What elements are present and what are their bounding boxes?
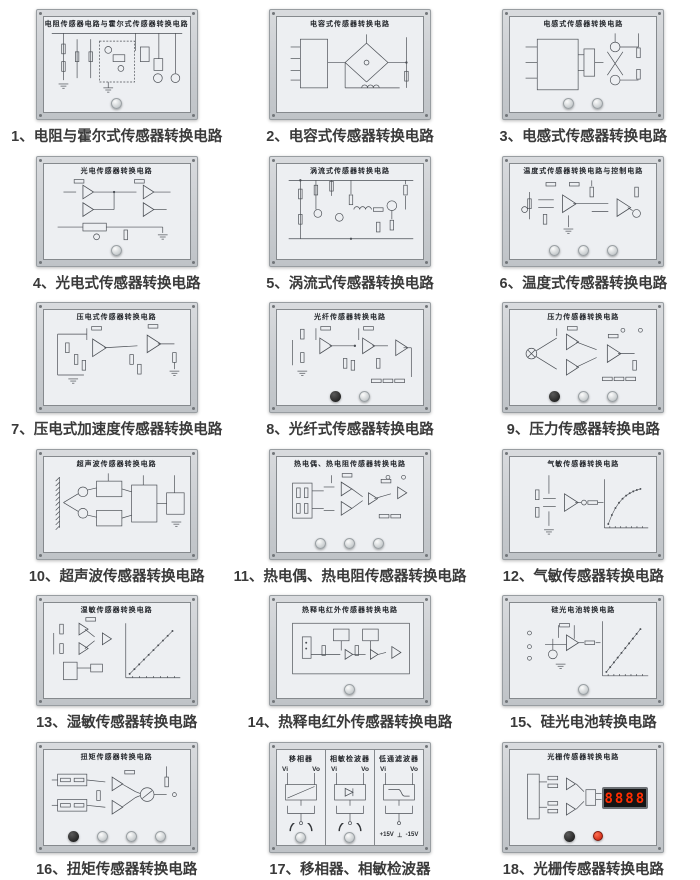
panel-caption: 13、湿敏传感器转换电路: [36, 711, 197, 732]
panel-caption: 10、超声波传感器转换电路: [29, 565, 205, 586]
light-rotary-knob: [578, 245, 589, 256]
light-rotary-knob: [373, 538, 384, 549]
screw-icon: [39, 12, 42, 15]
knob-row: [510, 684, 656, 695]
screw-icon: [272, 700, 275, 703]
panel-cell: 温度式传感器转换电路与控制电路 6、温度式传感器转换电路: [467, 147, 700, 294]
light-rotary-knob: [578, 684, 589, 695]
digital-display: 8888: [602, 787, 648, 809]
knob-row: [44, 245, 190, 256]
panel-grid: 电阻传感器电路与霍尔式传感器转换电路 1、电阻与霍尔式传感器转换电路 电容式传感…: [0, 0, 700, 880]
screw-icon: [272, 159, 275, 162]
panel-cell: 光纤传感器转换电路 8、光纤式传感器转换电路: [233, 293, 466, 440]
circuit-panel-13: 湿敏传感器转换电路: [36, 595, 198, 706]
panel-section-1: 移相器ViVo: [277, 750, 325, 845]
panel-caption: 7、压电式加速度传感器转换电路: [11, 418, 222, 439]
screw-icon: [425, 554, 428, 557]
screw-icon: [658, 700, 661, 703]
screw-icon: [39, 159, 42, 162]
rotary-knob: [295, 832, 306, 843]
panel-plate: 电容式传感器转换电路: [276, 16, 424, 113]
panel-plate: 硅光电池转换电路: [509, 602, 657, 699]
panel-cell: 电容式传感器转换电路 2、电容式传感器转换电路: [233, 0, 466, 147]
panel-cell: 扭矩传感器转换电路 16、扭矩传感器转换电路: [0, 733, 233, 880]
vo-terminal-label: Vo: [410, 766, 418, 773]
knob-row: [510, 98, 656, 109]
screw-icon: [272, 554, 275, 557]
dial-arc-icon: [286, 823, 316, 832]
schematic-drawing: [277, 17, 423, 112]
panel-cell: 热释电红外传感器转换电路 14、热释电红外传感器转换电路: [233, 586, 466, 733]
circuit-panel-10: 超声波传感器转换电路: [36, 449, 198, 560]
panel-cell: 涡流式传感器转换电路 5、涡流式传感器转换电路: [233, 147, 466, 294]
screw-icon: [425, 159, 428, 162]
schematic-drawing: [44, 457, 190, 552]
screw-icon: [192, 745, 195, 748]
screw-icon: [39, 745, 42, 748]
circuit-panel-3: 电感式传感器转换电路: [502, 9, 664, 120]
panel-plate: 气敏传感器转换电路: [509, 456, 657, 553]
light-rotary-knob: [549, 245, 560, 256]
panel-plate: 扭矩传感器转换电路: [43, 749, 191, 846]
screw-icon: [39, 407, 42, 410]
circuit-panel-16: 扭矩传感器转换电路: [36, 742, 198, 853]
circuit-panel-11: 热电偶、热电阻传感器转换电路: [269, 449, 431, 560]
screw-icon: [425, 700, 428, 703]
knob-row: [277, 684, 423, 695]
screw-icon: [39, 261, 42, 264]
circuit-panel-14: 热释电红外传感器转换电路: [269, 595, 431, 706]
panel-caption: 3、电感式传感器转换电路: [500, 125, 668, 146]
knob-row: [510, 391, 656, 402]
screw-icon: [192, 598, 195, 601]
screw-icon: [272, 12, 275, 15]
circuit-panel-18: 光栅传感器转换电路 8888: [502, 742, 664, 853]
section-terminals: ViVo: [277, 766, 325, 773]
knob-row: [44, 831, 190, 842]
screw-icon: [272, 305, 275, 308]
knob-row: [277, 538, 423, 549]
panel-plate: 光栅传感器转换电路 8888: [509, 749, 657, 846]
screw-icon: [658, 261, 661, 264]
screw-icon: [505, 700, 508, 703]
panel-caption: 12、气敏传感器转换电路: [503, 565, 664, 586]
circuit-panel-4: 光电传感器转换电路: [36, 156, 198, 267]
screw-icon: [425, 12, 428, 15]
panel-caption: 1、电阻与霍尔式传感器转换电路: [11, 125, 222, 146]
vo-terminal-label: Vo: [312, 766, 320, 773]
circuit-panel-7: 压电式传感器转换电路: [36, 302, 198, 413]
light-rotary-knob: [607, 245, 618, 256]
section-title: 移相器: [289, 754, 313, 764]
circuit-panel-2: 电容式传感器转换电路: [269, 9, 431, 120]
panel-plate: 涡流式传感器转换电路: [276, 163, 424, 260]
section-title: 低通滤波器: [379, 754, 419, 764]
screw-icon: [192, 261, 195, 264]
screw-icon: [39, 847, 42, 850]
schematic-drawing: [44, 603, 190, 698]
knob-row: [277, 391, 423, 402]
screw-icon: [425, 305, 428, 308]
panel-plate: 电感式传感器转换电路: [509, 16, 657, 113]
panel-cell: 压电式传感器转换电路 7、压电式加速度传感器转换电路: [0, 293, 233, 440]
light-rotary-knob: [592, 98, 603, 109]
power-label: -15V: [406, 832, 419, 839]
dark-rotary-knob: [68, 831, 79, 842]
power-terminal-labels: +15V⊥-15V: [375, 832, 423, 839]
circuit-panel-17: 移相器ViVo相敏检波器ViVo低通滤波器ViVo+15V⊥-15V: [269, 742, 431, 853]
screw-icon: [192, 114, 195, 117]
light-rotary-knob: [563, 98, 574, 109]
knob-row: [510, 831, 656, 842]
panel-caption: 18、光栅传感器转换电路: [503, 858, 664, 879]
screw-icon: [658, 114, 661, 117]
panel-plate: 压电式传感器转换电路: [43, 309, 191, 406]
screw-icon: [505, 305, 508, 308]
screw-icon: [192, 12, 195, 15]
panel-cell: 湿敏传感器转换电路 13、湿敏传感器转换电路: [0, 586, 233, 733]
panel-caption: 14、热释电红外传感器转换电路: [248, 711, 453, 732]
screw-icon: [272, 407, 275, 410]
panel-caption: 2、电容式传感器转换电路: [266, 125, 434, 146]
panel-plate: 移相器ViVo相敏检波器ViVo低通滤波器ViVo+15V⊥-15V: [276, 749, 424, 846]
light-rotary-knob: [344, 684, 355, 695]
screw-icon: [192, 452, 195, 455]
light-rotary-knob: [315, 538, 326, 549]
screw-icon: [272, 452, 275, 455]
screw-icon: [425, 745, 428, 748]
panel-section-3: 低通滤波器ViVo+15V⊥-15V: [374, 750, 423, 845]
dark-rotary-knob: [549, 391, 560, 402]
screw-icon: [658, 598, 661, 601]
screw-icon: [272, 114, 275, 117]
panel-caption: 4、光电式传感器转换电路: [33, 272, 201, 293]
screw-icon: [505, 745, 508, 748]
panel-plate: 湿敏传感器转换电路: [43, 602, 191, 699]
circuit-panel-12: 气敏传感器转换电路: [502, 449, 664, 560]
panel-plate: 压力传感器转换电路: [509, 309, 657, 406]
screw-icon: [192, 305, 195, 308]
panel-cell: 移相器ViVo相敏检波器ViVo低通滤波器ViVo+15V⊥-15V 17、移相…: [233, 733, 466, 880]
schematic-drawing: [44, 310, 190, 405]
circuit-panel-1: 电阻传感器电路与霍尔式传感器转换电路: [36, 9, 198, 120]
vo-terminal-label: Vo: [361, 766, 369, 773]
panel-plate: 热释电红外传感器转换电路: [276, 602, 424, 699]
dark-rotary-knob: [330, 391, 341, 402]
panel-plate: 电阻传感器电路与霍尔式传感器转换电路: [43, 16, 191, 113]
section-knob-area: [277, 823, 325, 843]
light-rotary-knob: [607, 391, 618, 402]
screw-icon: [192, 407, 195, 410]
screw-icon: [425, 114, 428, 117]
panel-cell: 超声波传感器转换电路 10、超声波传感器转换电路: [0, 440, 233, 587]
circuit-panel-5: 涡流式传感器转换电路: [269, 156, 431, 267]
screw-icon: [39, 305, 42, 308]
panel-plate: 热电偶、热电阻传感器转换电路: [276, 456, 424, 553]
screw-icon: [272, 598, 275, 601]
panel-caption: 6、温度式传感器转换电路: [500, 272, 668, 293]
vi-terminal-label: Vi: [380, 766, 386, 773]
section-terminals: ViVo: [375, 766, 423, 773]
dial-arc-icon: [335, 823, 365, 832]
panel-caption: 5、涡流式传感器转换电路: [266, 272, 434, 293]
screw-icon: [505, 114, 508, 117]
vi-terminal-label: Vi: [282, 766, 288, 773]
screw-icon: [192, 554, 195, 557]
panel-plate: 超声波传感器转换电路: [43, 456, 191, 553]
panel-cell: 热电偶、热电阻传感器转换电路 11、热电偶、热电阻传感器转换电路: [233, 440, 466, 587]
light-rotary-knob: [126, 831, 137, 842]
circuit-panel-8: 光纤传感器转换电路: [269, 302, 431, 413]
screw-icon: [425, 847, 428, 850]
screw-icon: [658, 554, 661, 557]
screw-icon: [505, 407, 508, 410]
red-push-button: [593, 831, 603, 841]
vi-terminal-label: Vi: [331, 766, 337, 773]
panel-cell: 电感式传感器转换电路 3、电感式传感器转换电路: [467, 0, 700, 147]
power-label: ⊥: [397, 832, 402, 839]
screw-icon: [39, 554, 42, 557]
schematic-drawing: [510, 457, 656, 552]
screw-icon: [658, 407, 661, 410]
screw-icon: [505, 261, 508, 264]
section-terminals: ViVo: [326, 766, 374, 773]
rotary-knob: [344, 832, 355, 843]
screw-icon: [658, 745, 661, 748]
panel-sections: 移相器ViVo相敏检波器ViVo低通滤波器ViVo+15V⊥-15V: [277, 750, 423, 845]
screw-icon: [658, 12, 661, 15]
screw-icon: [425, 407, 428, 410]
panel-cell: 硅光电池转换电路 15、硅光电池转换电路: [467, 586, 700, 733]
screw-icon: [505, 598, 508, 601]
screw-icon: [505, 847, 508, 850]
panel-caption: 16、扭矩传感器转换电路: [36, 858, 197, 879]
screw-icon: [39, 452, 42, 455]
light-rotary-knob: [111, 245, 122, 256]
panel-plate: 温度式传感器转换电路与控制电路: [509, 163, 657, 260]
schematic-drawing: [277, 164, 423, 259]
screw-icon: [192, 700, 195, 703]
light-rotary-knob: [578, 391, 589, 402]
section-knob-area: [326, 823, 374, 843]
panel-cell: 气敏传感器转换电路 12、气敏传感器转换电路: [467, 440, 700, 587]
panel-section-2: 相敏检波器ViVo: [325, 750, 374, 845]
screw-icon: [425, 261, 428, 264]
circuit-panel-15: 硅光电池转换电路: [502, 595, 664, 706]
screw-icon: [658, 305, 661, 308]
screw-icon: [505, 452, 508, 455]
power-label: +15V: [380, 832, 394, 839]
section-symbol: [279, 773, 323, 827]
panel-plate: 光纤传感器转换电路: [276, 309, 424, 406]
circuit-panel-9: 压力传感器转换电路: [502, 302, 664, 413]
panel-plate: 光电传感器转换电路: [43, 163, 191, 260]
screw-icon: [192, 159, 195, 162]
knob-row: [44, 98, 190, 109]
screw-icon: [505, 554, 508, 557]
screw-icon: [658, 452, 661, 455]
knob-row: [510, 245, 656, 256]
screw-icon: [658, 847, 661, 850]
section-symbol: [328, 773, 372, 827]
circuit-panel-6: 温度式传感器转换电路与控制电路: [502, 156, 664, 267]
dark-rotary-knob: [564, 831, 575, 842]
panel-cell: 电阻传感器电路与霍尔式传感器转换电路 1、电阻与霍尔式传感器转换电路: [0, 0, 233, 147]
screw-icon: [658, 159, 661, 162]
light-rotary-knob: [359, 391, 370, 402]
panel-cell: 光栅传感器转换电路 8888 18、光栅传感器转换电路: [467, 733, 700, 880]
screw-icon: [39, 598, 42, 601]
light-rotary-knob: [155, 831, 166, 842]
panel-cell: 压力传感器转换电路 9、压力传感器转换电路: [467, 293, 700, 440]
screw-icon: [425, 452, 428, 455]
section-symbol: [377, 773, 421, 827]
light-rotary-knob: [344, 538, 355, 549]
panel-caption: 15、硅光电池转换电路: [510, 711, 657, 732]
screw-icon: [39, 114, 42, 117]
screw-icon: [272, 745, 275, 748]
light-rotary-knob: [97, 831, 108, 842]
section-title: 相敏检波器: [330, 754, 370, 764]
screw-icon: [39, 700, 42, 703]
panel-cell: 光电传感器转换电路 4、光电式传感器转换电路: [0, 147, 233, 294]
panel-caption: 8、光纤式传感器转换电路: [266, 418, 434, 439]
panel-caption: 11、热电偶、热电阻传感器转换电路: [234, 565, 467, 586]
screw-icon: [272, 261, 275, 264]
panel-caption: 17、移相器、相敏检波器: [269, 858, 430, 879]
screw-icon: [272, 847, 275, 850]
panel-caption: 9、压力传感器转换电路: [507, 418, 660, 439]
screw-icon: [505, 159, 508, 162]
light-rotary-knob: [111, 98, 122, 109]
screw-icon: [192, 847, 195, 850]
screw-icon: [505, 12, 508, 15]
screw-icon: [425, 598, 428, 601]
